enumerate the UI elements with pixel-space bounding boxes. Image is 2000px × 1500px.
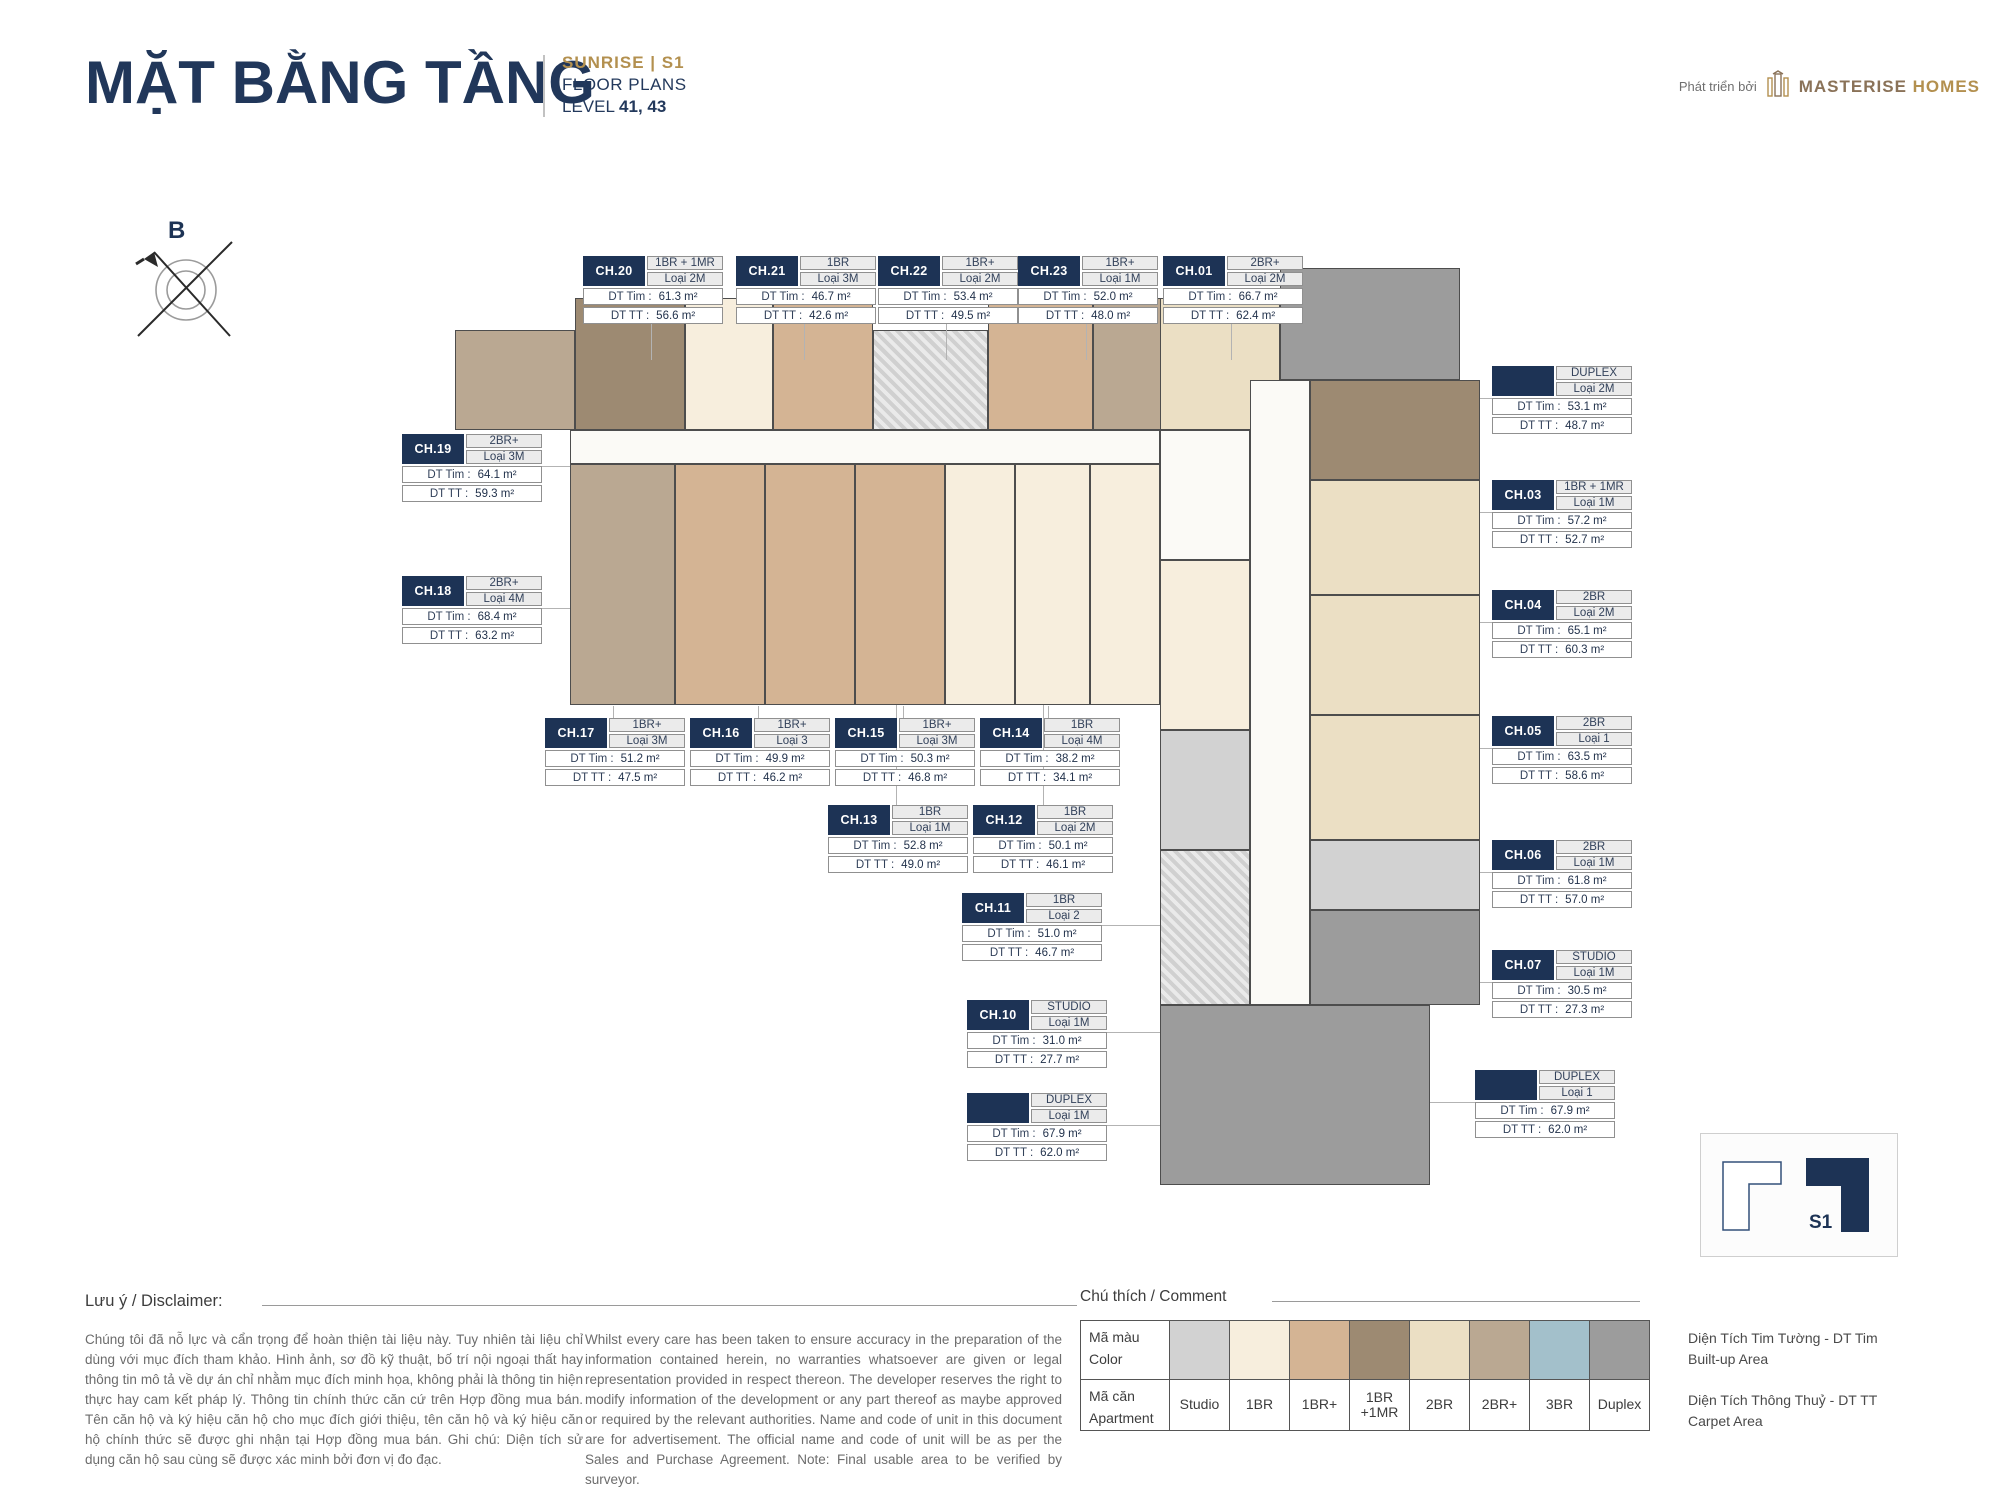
unit-card-duplex-2m: DUPLEX Loại 2M DT Tim :53.1 m² DT TT :48… <box>1492 366 1632 434</box>
unit-dt-tt: DT TT :42.6 m² <box>736 307 876 324</box>
unit-variant: Loại 3M <box>466 450 542 464</box>
legend-name: Duplex <box>1590 1379 1649 1430</box>
unit-variant: Loại 2M <box>647 272 723 286</box>
legend-name: Studio <box>1170 1379 1229 1430</box>
plan-corridor-horizontal <box>570 430 1160 464</box>
unit-type: 2BR <box>1556 716 1632 730</box>
legend-name: 3BR <box>1530 1379 1589 1430</box>
plan-unit-duplex-east <box>1310 910 1480 1005</box>
unit-dt-tim: DT Tim :50.3 m² <box>835 750 975 767</box>
unit-dt-tt: DT TT :47.5 m² <box>545 769 685 786</box>
legend-item-3br: 3BR <box>1529 1321 1589 1430</box>
unit-dt-tt: DT TT :48.0 m² <box>1018 307 1158 324</box>
unit-card-ch04: CH.04 2BR Loại 2M DT Tim :65.1 m² DT TT … <box>1492 590 1632 658</box>
unit-type: 1BR + 1MR <box>1556 480 1632 494</box>
unit-card-ch18: CH.18 2BR+ Loại 4M DT Tim :68.4 m² DT TT… <box>402 576 542 644</box>
legend-swatch <box>1590 1321 1649 1379</box>
plan-unit-ch03 <box>1310 380 1480 480</box>
unit-variant: Loại 2 <box>1026 909 1102 923</box>
developer-name: MASTERISE HOMES <box>1799 77 1980 97</box>
unit-dt-tt: DT TT :27.3 m² <box>1492 1001 1632 1018</box>
unit-variant: Loại 2M <box>1556 606 1632 620</box>
legend-name: 1BR +1MR <box>1350 1379 1409 1430</box>
unit-variant: Loại 1M <box>892 821 968 835</box>
unit-code: CH.23 <box>1018 256 1080 286</box>
connector-ch15 <box>903 706 904 718</box>
unit-dt-tt: DT TT :60.3 m² <box>1492 641 1632 658</box>
unit-card-ch03: CH.03 1BR + 1MR Loại 1M DT Tim :57.2 m² … <box>1492 480 1632 548</box>
unit-type: 2BR <box>1556 840 1632 854</box>
unit-variant: Loại 3M <box>609 734 685 748</box>
plan-corridor-vertical <box>1250 380 1310 1005</box>
minimap-other-building <box>1723 1162 1781 1230</box>
masterise-logo-icon <box>1765 70 1791 103</box>
plan-unit-ch05 <box>1310 595 1480 715</box>
unit-variant: Loại 2M <box>942 272 1018 286</box>
connector-ch05 <box>1480 748 1492 749</box>
unit-type: 1BR+ <box>899 718 975 732</box>
unit-code <box>967 1093 1029 1123</box>
connector-ch23 <box>1086 324 1087 360</box>
unit-dt-tt: DT TT :62.0 m² <box>1475 1121 1615 1138</box>
unit-dt-tt: DT TT :49.0 m² <box>828 856 968 873</box>
connector-duplex-1 <box>1430 1102 1475 1103</box>
connector-duplex-2m <box>1480 398 1492 399</box>
legend-item-2br: 2BR <box>1409 1321 1469 1430</box>
legend-color-label: Mã màuColor <box>1081 1321 1169 1379</box>
plan-unit-ch14 <box>945 464 1015 705</box>
unit-variant: Loại 2M <box>1556 382 1632 396</box>
legend-rule <box>1272 1301 1640 1302</box>
unit-dt-tim: DT Tim :50.1 m² <box>973 837 1113 854</box>
unit-type: 1BR+ <box>754 718 830 732</box>
connector-duplex-south <box>1107 1125 1160 1126</box>
unit-type: 2BR+ <box>466 576 542 590</box>
legend-name: 1BR <box>1230 1379 1289 1430</box>
plan-unit-ch16 <box>765 464 855 705</box>
legend-swatch <box>1290 1321 1349 1379</box>
unit-dt-tt: DT TT :62.0 m² <box>967 1144 1107 1161</box>
plan-unit-ch04 <box>1310 480 1480 595</box>
plan-unit-ch06 <box>1310 715 1480 840</box>
unit-dt-tim: DT Tim :53.1 m² <box>1492 398 1632 415</box>
legend-item-2brplus: 2BR+ <box>1469 1321 1529 1430</box>
unit-variant: Loại 1M <box>1556 496 1632 510</box>
unit-variant: Loại 1M <box>1031 1109 1107 1123</box>
plan-unit-duplex-south <box>1160 1005 1430 1185</box>
unit-type: DUPLEX <box>1556 366 1632 380</box>
unit-dt-tt: DT TT :34.1 m² <box>980 769 1120 786</box>
unit-dt-tt: DT TT :46.1 m² <box>973 856 1113 873</box>
legend-table: Mã màuColor Mã cănApartment Studio 1BR 1… <box>1080 1320 1650 1431</box>
level-value: 41, 43 <box>619 97 666 116</box>
legend-swatch <box>1350 1321 1409 1379</box>
level-label: LEVEL 41, 43 <box>562 96 687 118</box>
unit-code: CH.06 <box>1492 840 1554 870</box>
area-def-built-up: Diện Tích Tim Tường - DT Tim Built-up Ar… <box>1688 1328 1878 1370</box>
north-label: B <box>168 217 185 244</box>
unit-dt-tt: DT TT :59.3 m² <box>402 485 542 502</box>
unit-card-duplex-1m: DUPLEX Loại 1M DT Tim :67.9 m² DT TT :62… <box>967 1093 1107 1161</box>
unit-code: CH.17 <box>545 718 607 748</box>
unit-card-ch23: CH.23 1BR+ Loại 1M DT Tim :52.0 m² DT TT… <box>1018 256 1158 324</box>
floor-plan-page: MẶT BẰNG TẦNG SUNRISE | S1 FLOOR PLANS L… <box>0 0 2000 1500</box>
unit-code <box>1475 1070 1537 1100</box>
legend-item-duplex: Duplex <box>1589 1321 1649 1430</box>
unit-dt-tt: DT TT :62.4 m² <box>1163 307 1303 324</box>
unit-type: 2BR+ <box>466 434 542 448</box>
unit-dt-tim: DT Tim :51.0 m² <box>962 925 1102 942</box>
unit-card-ch19: CH.19 2BR+ Loại 3M DT Tim :64.1 m² DT TT… <box>402 434 542 502</box>
unit-variant: Loại 2M <box>1037 821 1113 835</box>
unit-dt-tt: DT TT :57.0 m² <box>1492 891 1632 908</box>
unit-variant: Loại 4M <box>1044 734 1120 748</box>
unit-code: CH.16 <box>690 718 752 748</box>
unit-dt-tt: DT TT :49.5 m² <box>878 307 1018 324</box>
disclaimer-text-vi: Chúng tôi đã nỗ lực và cẩn trọng để hoàn… <box>85 1330 583 1470</box>
connector-ch03 <box>1480 512 1492 513</box>
connector-ch22 <box>946 324 947 360</box>
plan-unit-ch15 <box>855 464 945 705</box>
unit-card-ch20: CH.20 1BR + 1MR Loại 2M DT Tim :61.3 m² … <box>583 256 723 324</box>
connector-ch17 <box>613 706 614 718</box>
unit-card-ch12: CH.12 1BR Loại 2M DT Tim :50.1 m² DT TT … <box>973 805 1113 873</box>
unit-dt-tt: DT TT :56.6 m² <box>583 307 723 324</box>
unit-dt-tt: DT TT :46.2 m² <box>690 769 830 786</box>
unit-card-ch13: CH.13 1BR Loại 1M DT Tim :52.8 m² DT TT … <box>828 805 968 873</box>
unit-variant: Loại 1M <box>1556 856 1632 870</box>
connector-ch01 <box>1231 324 1232 360</box>
unit-card-ch21: CH.21 1BR Loại 3M DT Tim :46.7 m² DT TT … <box>736 256 876 324</box>
unit-dt-tim: DT Tim :68.4 m² <box>402 608 542 625</box>
area-def-carpet: Diện Tích Thông Thuỷ - DT TT Carpet Area <box>1688 1390 1877 1432</box>
unit-dt-tt: DT TT :46.7 m² <box>962 944 1102 961</box>
plan-unit-ch19 <box>455 330 575 430</box>
plan-unit-ch13 <box>1015 464 1090 705</box>
legend-swatch <box>1470 1321 1529 1379</box>
unit-type: 1BR+ <box>942 256 1018 270</box>
unit-type: 2BR <box>1556 590 1632 604</box>
plan-unit-ch12 <box>1090 464 1160 705</box>
unit-dt-tim: DT Tim :65.1 m² <box>1492 622 1632 639</box>
legend-item-1brplus: 1BR+ <box>1289 1321 1349 1430</box>
compass-north-indicator: B <box>122 210 247 345</box>
unit-code <box>1492 366 1554 396</box>
unit-type: 1BR+ <box>609 718 685 732</box>
unit-code: CH.05 <box>1492 716 1554 746</box>
unit-code: CH.04 <box>1492 590 1554 620</box>
unit-type: STUDIO <box>1031 1000 1107 1014</box>
legend-name: 2BR <box>1410 1379 1469 1430</box>
unit-variant: Loại 3 <box>754 734 830 748</box>
unit-variant: Loại 3M <box>800 272 876 286</box>
disclaimer-text-en: Whilst every care has been taken to ensu… <box>585 1330 1062 1490</box>
unit-card-ch10: CH.10 STUDIO Loại 1M DT Tim :31.0 m² DT … <box>967 1000 1107 1068</box>
plan-unit-ch07 <box>1310 840 1480 910</box>
plan-stair-core <box>1160 850 1250 1005</box>
unit-code: CH.07 <box>1492 950 1554 980</box>
developer-block: Phát triển bởi MASTERISE HOMES <box>1640 70 1980 103</box>
unit-dt-tt: DT TT :63.2 m² <box>402 627 542 644</box>
header-subtitle-block: SUNRISE | S1 FLOOR PLANS LEVEL 41, 43 <box>562 52 687 118</box>
legend-item-1br: 1BR <box>1229 1321 1289 1430</box>
legend-apartment-label: Mã cănApartment <box>1081 1379 1169 1429</box>
header-divider <box>543 55 545 117</box>
unit-dt-tt: DT TT :46.8 m² <box>835 769 975 786</box>
unit-card-ch01: CH.01 2BR+ Loại 2M DT Tim :66.7 m² DT TT… <box>1163 256 1303 324</box>
unit-type: DUPLEX <box>1539 1070 1615 1084</box>
unit-variant: Loại 1M <box>1556 966 1632 980</box>
unit-dt-tim: DT Tim :67.9 m² <box>1475 1102 1615 1119</box>
unit-card-ch16: CH.16 1BR+ Loại 3 DT Tim :49.9 m² DT TT … <box>690 718 830 786</box>
minimap-s1-label: S1 <box>1809 1212 1833 1233</box>
site-minimap: S1 <box>1700 1133 1898 1257</box>
legend-name: 1BR+ <box>1290 1379 1349 1430</box>
unit-code: CH.10 <box>967 1000 1029 1030</box>
legend-swatch <box>1230 1321 1289 1379</box>
unit-type: STUDIO <box>1556 950 1632 964</box>
plan-unit-ch11 <box>1160 560 1250 730</box>
unit-dt-tim: DT Tim :31.0 m² <box>967 1032 1107 1049</box>
unit-dt-tim: DT Tim :61.3 m² <box>583 288 723 305</box>
unit-dt-tim: DT Tim :51.2 m² <box>545 750 685 767</box>
unit-code: CH.01 <box>1163 256 1225 286</box>
connector-ch11 <box>1102 925 1160 926</box>
connector-ch06 <box>1480 872 1492 873</box>
connector-ch10 <box>1107 1032 1160 1033</box>
unit-dt-tt: DT TT :52.7 m² <box>1492 531 1632 548</box>
connector-ch16 <box>758 706 759 718</box>
legend-swatch <box>1170 1321 1229 1379</box>
unit-dt-tt: DT TT :58.6 m² <box>1492 767 1632 784</box>
unit-type: 1BR <box>1044 718 1120 732</box>
unit-card-ch14: CH.14 1BR Loại 4M DT Tim :38.2 m² DT TT … <box>980 718 1120 786</box>
unit-variant: Loại 4M <box>466 592 542 606</box>
plan-unit-duplex-2m <box>1280 268 1460 380</box>
unit-type: 1BR <box>892 805 968 819</box>
unit-type: 1BR <box>1026 893 1102 907</box>
unit-variant: Loại 2M <box>1227 272 1303 286</box>
plan-elevator-core <box>873 330 988 430</box>
connector-ch21 <box>804 324 805 360</box>
unit-dt-tim: DT Tim :66.7 m² <box>1163 288 1303 305</box>
legend-item-studio: Studio <box>1169 1321 1229 1430</box>
unit-code: CH.21 <box>736 256 798 286</box>
legend-name: 2BR+ <box>1470 1379 1529 1430</box>
unit-dt-tim: DT Tim :63.5 m² <box>1492 748 1632 765</box>
legend-label-column: Mã màuColor Mã cănApartment <box>1081 1321 1169 1430</box>
unit-type: 2BR+ <box>1227 256 1303 270</box>
unit-card-ch07: CH.07 STUDIO Loại 1M DT Tim :30.5 m² DT … <box>1492 950 1632 1018</box>
unit-code: CH.18 <box>402 576 464 606</box>
plan-unit-ch10 <box>1160 730 1250 850</box>
unit-type: 1BR <box>1037 805 1113 819</box>
unit-variant: Loại 1 <box>1556 732 1632 746</box>
unit-dt-tim: DT Tim :30.5 m² <box>1492 982 1632 999</box>
project-name: SUNRISE | S1 <box>562 52 687 74</box>
unit-dt-tim: DT Tim :46.7 m² <box>736 288 876 305</box>
unit-dt-tim: DT Tim :64.1 m² <box>402 466 542 483</box>
plan-unit-ch17 <box>675 464 765 705</box>
unit-variant: Loại 1 <box>1539 1086 1615 1100</box>
unit-card-duplex-1: DUPLEX Loại 1 DT Tim :67.9 m² DT TT :62.… <box>1475 1070 1615 1138</box>
unit-code: CH.11 <box>962 893 1024 923</box>
unit-type: 1BR <box>800 256 876 270</box>
legend-item-1br1mr: 1BR +1MR <box>1349 1321 1409 1430</box>
unit-dt-tim: DT Tim :53.4 m² <box>878 288 1018 305</box>
unit-card-ch15: CH.15 1BR+ Loại 3M DT Tim :50.3 m² DT TT… <box>835 718 975 786</box>
unit-variant: Loại 1M <box>1031 1016 1107 1030</box>
unit-dt-tim: DT Tim :52.0 m² <box>1018 288 1158 305</box>
connector-ch14 <box>1048 706 1049 718</box>
unit-type: 1BR+ <box>1082 256 1158 270</box>
legend-swatch <box>1410 1321 1469 1379</box>
connector-ch20 <box>651 324 652 360</box>
unit-code: CH.22 <box>878 256 940 286</box>
unit-type: DUPLEX <box>1031 1093 1107 1107</box>
unit-card-ch17: CH.17 1BR+ Loại 3M DT Tim :51.2 m² DT TT… <box>545 718 685 786</box>
connector-ch19 <box>542 466 570 467</box>
unit-card-ch05: CH.05 2BR Loại 1 DT Tim :63.5 m² DT TT :… <box>1492 716 1632 784</box>
disclaimer-heading: Lưu ý / Disclaimer: <box>85 1292 223 1311</box>
legend-heading: Chú thích / Comment <box>1080 1288 1226 1306</box>
disclaimer-rule <box>262 1305 1077 1306</box>
plan-unit-ch18 <box>570 464 675 705</box>
unit-dt-tim: DT Tim :57.2 m² <box>1492 512 1632 529</box>
page-title: MẶT BẰNG TẦNG <box>85 48 595 117</box>
unit-dt-tt: DT TT :27.7 m² <box>967 1051 1107 1068</box>
connector-ch18 <box>542 608 570 609</box>
unit-code: CH.14 <box>980 718 1042 748</box>
connector-ch04 <box>1480 622 1492 623</box>
unit-code: CH.20 <box>583 256 645 286</box>
unit-variant: Loại 3M <box>899 734 975 748</box>
unit-card-ch06: CH.06 2BR Loại 1M DT Tim :61.8 m² DT TT … <box>1492 840 1632 908</box>
unit-variant: Loại 1M <box>1082 272 1158 286</box>
unit-dt-tim: DT Tim :38.2 m² <box>980 750 1120 767</box>
unit-code: CH.19 <box>402 434 464 464</box>
unit-dt-tim: DT Tim :49.9 m² <box>690 750 830 767</box>
unit-dt-tim: DT Tim :61.8 m² <box>1492 872 1632 889</box>
unit-code: CH.15 <box>835 718 897 748</box>
unit-card-ch22: CH.22 1BR+ Loại 2M DT Tim :53.4 m² DT TT… <box>878 256 1018 324</box>
legend-swatch <box>1530 1321 1589 1379</box>
unit-code: CH.03 <box>1492 480 1554 510</box>
connector-ch07 <box>1480 982 1492 983</box>
unit-code: CH.12 <box>973 805 1035 835</box>
unit-type: 1BR + 1MR <box>647 256 723 270</box>
unit-dt-tt: DT TT :48.7 m² <box>1492 417 1632 434</box>
unit-card-ch11: CH.11 1BR Loại 2 DT Tim :51.0 m² DT TT :… <box>962 893 1102 961</box>
unit-code: CH.13 <box>828 805 890 835</box>
developer-prefix: Phát triển bởi <box>1679 79 1757 94</box>
unit-dt-tim: DT Tim :67.9 m² <box>967 1125 1107 1142</box>
plan-utility <box>1160 430 1250 560</box>
unit-dt-tim: DT Tim :52.8 m² <box>828 837 968 854</box>
floor-plans-label: FLOOR PLANS <box>562 74 687 96</box>
